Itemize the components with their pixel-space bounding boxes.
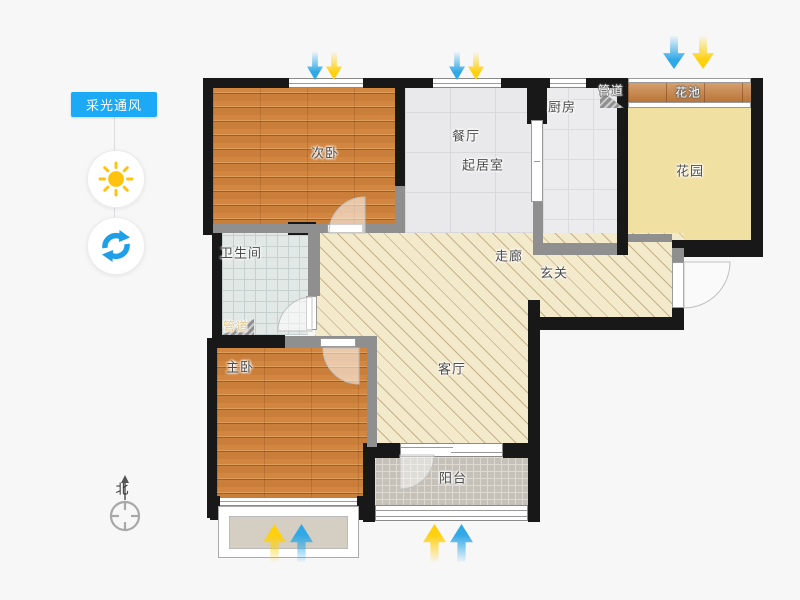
wall-segment — [308, 233, 320, 296]
wall-segment — [363, 78, 433, 88]
door-second-bedroom — [327, 224, 363, 233]
ventilation-arrow-down-icon — [307, 52, 323, 80]
wall-segment — [533, 243, 617, 255]
balcony-sliding-door — [400, 443, 503, 457]
room-label-second-bedroom: 次卧 — [311, 143, 339, 162]
bay-window-frame — [218, 506, 359, 558]
wall-segment — [617, 88, 628, 255]
window-master-bedroom — [220, 497, 357, 506]
window-second-bedroom — [289, 78, 363, 88]
window-living-room-top — [433, 78, 501, 88]
flower-pool-window-bottom — [628, 102, 751, 108]
wall-segment — [395, 186, 405, 233]
balcony-railing — [375, 505, 528, 521]
door-entrance — [672, 262, 684, 308]
wall-segment — [395, 88, 405, 188]
wall-segment — [213, 224, 395, 233]
door-bathroom — [306, 296, 317, 330]
room-label-kitchen: 厨房 — [548, 97, 576, 116]
door-kitchen-sliding — [531, 120, 543, 202]
room-label-living: 起居室 — [462, 155, 504, 174]
room-label-garden: 花园 — [676, 161, 704, 180]
room-label-master-bedroom: 主卧 — [226, 357, 254, 376]
window-kitchen — [550, 78, 586, 88]
door-master-bedroom — [320, 338, 356, 347]
sliding-door-line — [534, 161, 540, 162]
ventilation-arrow-up-icon — [450, 524, 473, 562]
room-label-dining: 餐厅 — [452, 126, 480, 145]
wall-segment — [527, 78, 547, 124]
wall-segment — [528, 300, 540, 522]
north-label: 北 — [115, 479, 128, 498]
sliding-door-line — [451, 452, 503, 453]
sliding-door-line — [401, 447, 453, 448]
room-label-bathroom: 卫生间 — [220, 243, 262, 262]
wall-segment — [672, 248, 684, 262]
wall-segment — [203, 78, 289, 88]
wall-segment — [203, 78, 213, 235]
room-label-pipe-bottom: 管道 — [223, 318, 249, 335]
bay-window-sill — [229, 516, 348, 549]
light-arrow-down-icon — [468, 52, 484, 80]
room-label-balcony: 阳台 — [439, 468, 467, 487]
room-label-flower-pool: 花池 — [675, 84, 701, 101]
room-label-pipe-top: 管道 — [598, 82, 624, 99]
wall-segment — [367, 348, 377, 447]
sun-button[interactable] — [87, 150, 145, 208]
sun-icon — [97, 160, 135, 198]
room-floor-second-bedroom — [213, 88, 395, 233]
light-arrow-down-icon — [326, 52, 342, 80]
room-label-living-room: 客厅 — [438, 359, 466, 378]
wall-segment — [533, 200, 543, 245]
ventilation-arrow-down-icon — [663, 36, 685, 69]
wall-segment — [540, 317, 684, 330]
light-arrow-up-icon — [423, 524, 446, 562]
wall-segment — [672, 240, 763, 257]
wall-segment — [628, 234, 672, 242]
light-arrow-down-icon — [692, 36, 714, 69]
rotate-refresh-icon — [99, 229, 133, 263]
room-label-corridor: 走廊 — [495, 246, 523, 265]
floorplan-viewer: 次卧 餐厅 起居室 厨房 管道 花池 花园 卫生间 走廊 玄关 管道 主卧 客厅… — [0, 0, 800, 600]
tool-badge-daylight-ventilation[interactable]: 采光通风 — [71, 92, 157, 117]
rotate-button[interactable] — [87, 217, 145, 275]
wall-segment — [207, 338, 217, 518]
wall-segment — [212, 335, 285, 348]
wall-segment — [503, 443, 540, 458]
ventilation-arrow-down-icon — [449, 52, 465, 80]
room-label-foyer: 玄关 — [540, 263, 568, 282]
wall-segment — [672, 308, 684, 324]
wall-segment — [751, 78, 763, 257]
